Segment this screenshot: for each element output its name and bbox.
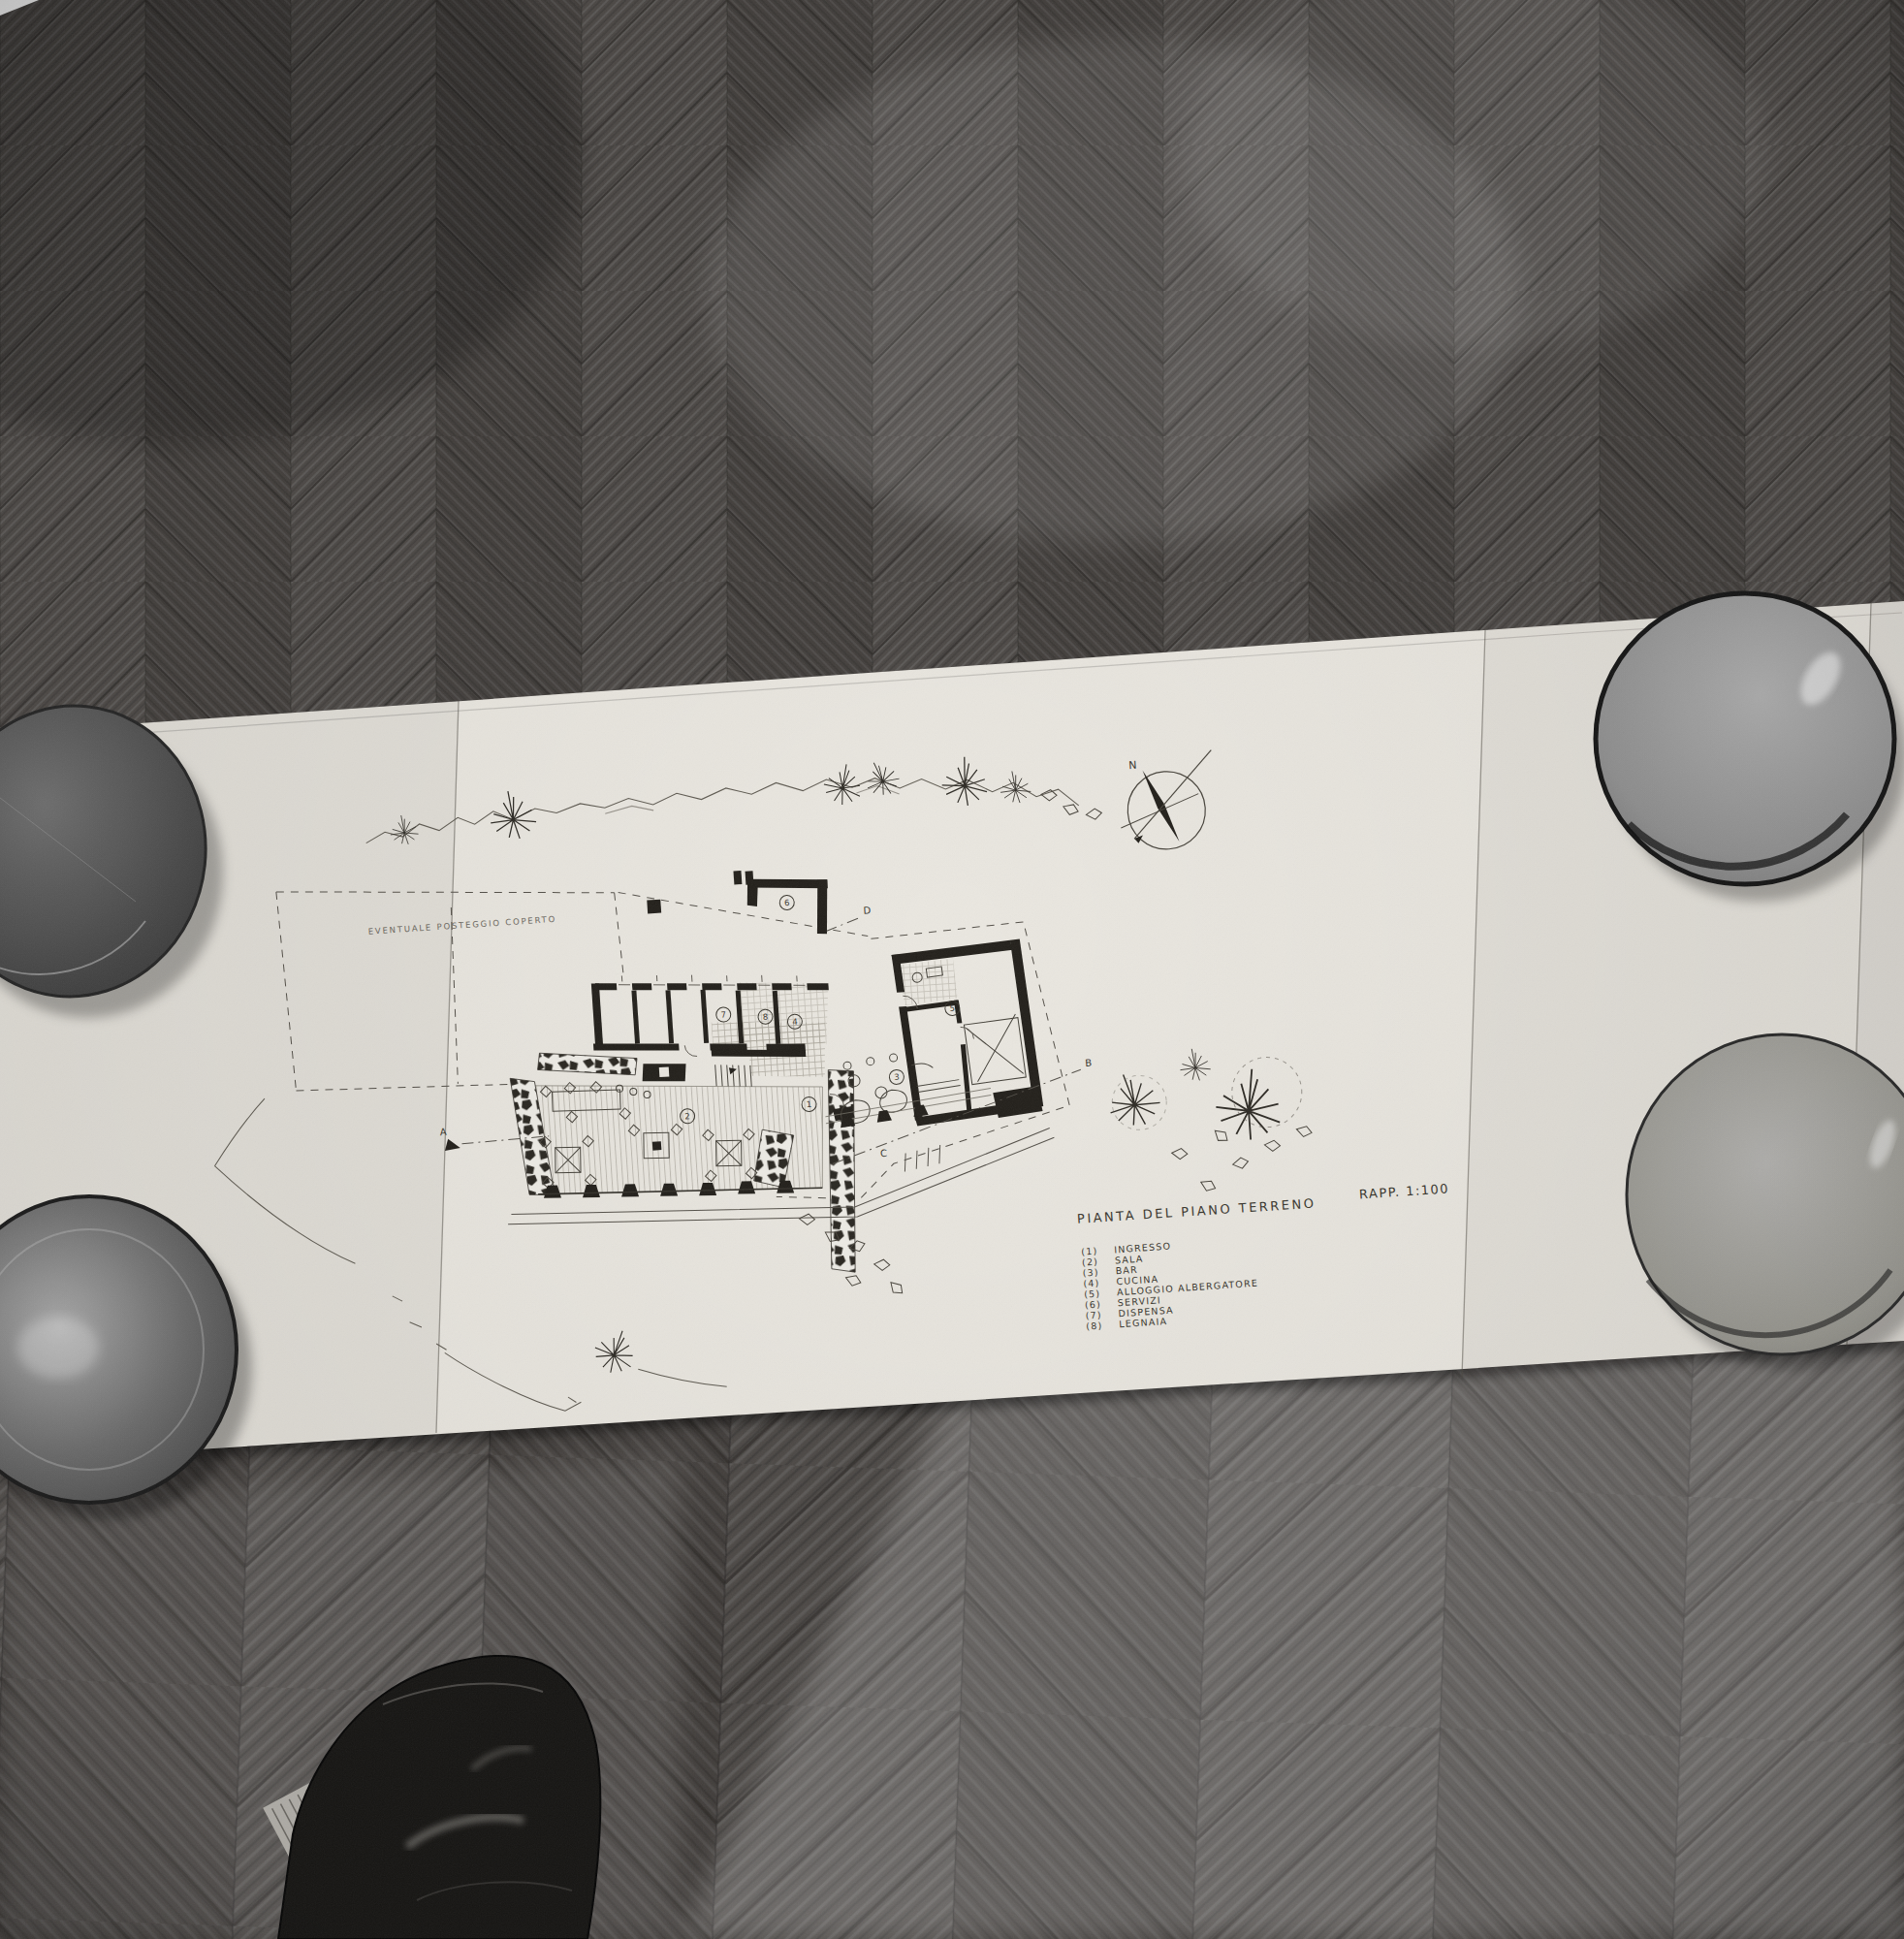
grain-overlay — [0, 0, 1904, 1939]
photo-canvas: N EVENTUALE POSTEGGIO COPERTO — [0, 0, 1904, 1939]
photograph: N EVENTUALE POSTEGGIO COPERTO — [0, 0, 1904, 1939]
